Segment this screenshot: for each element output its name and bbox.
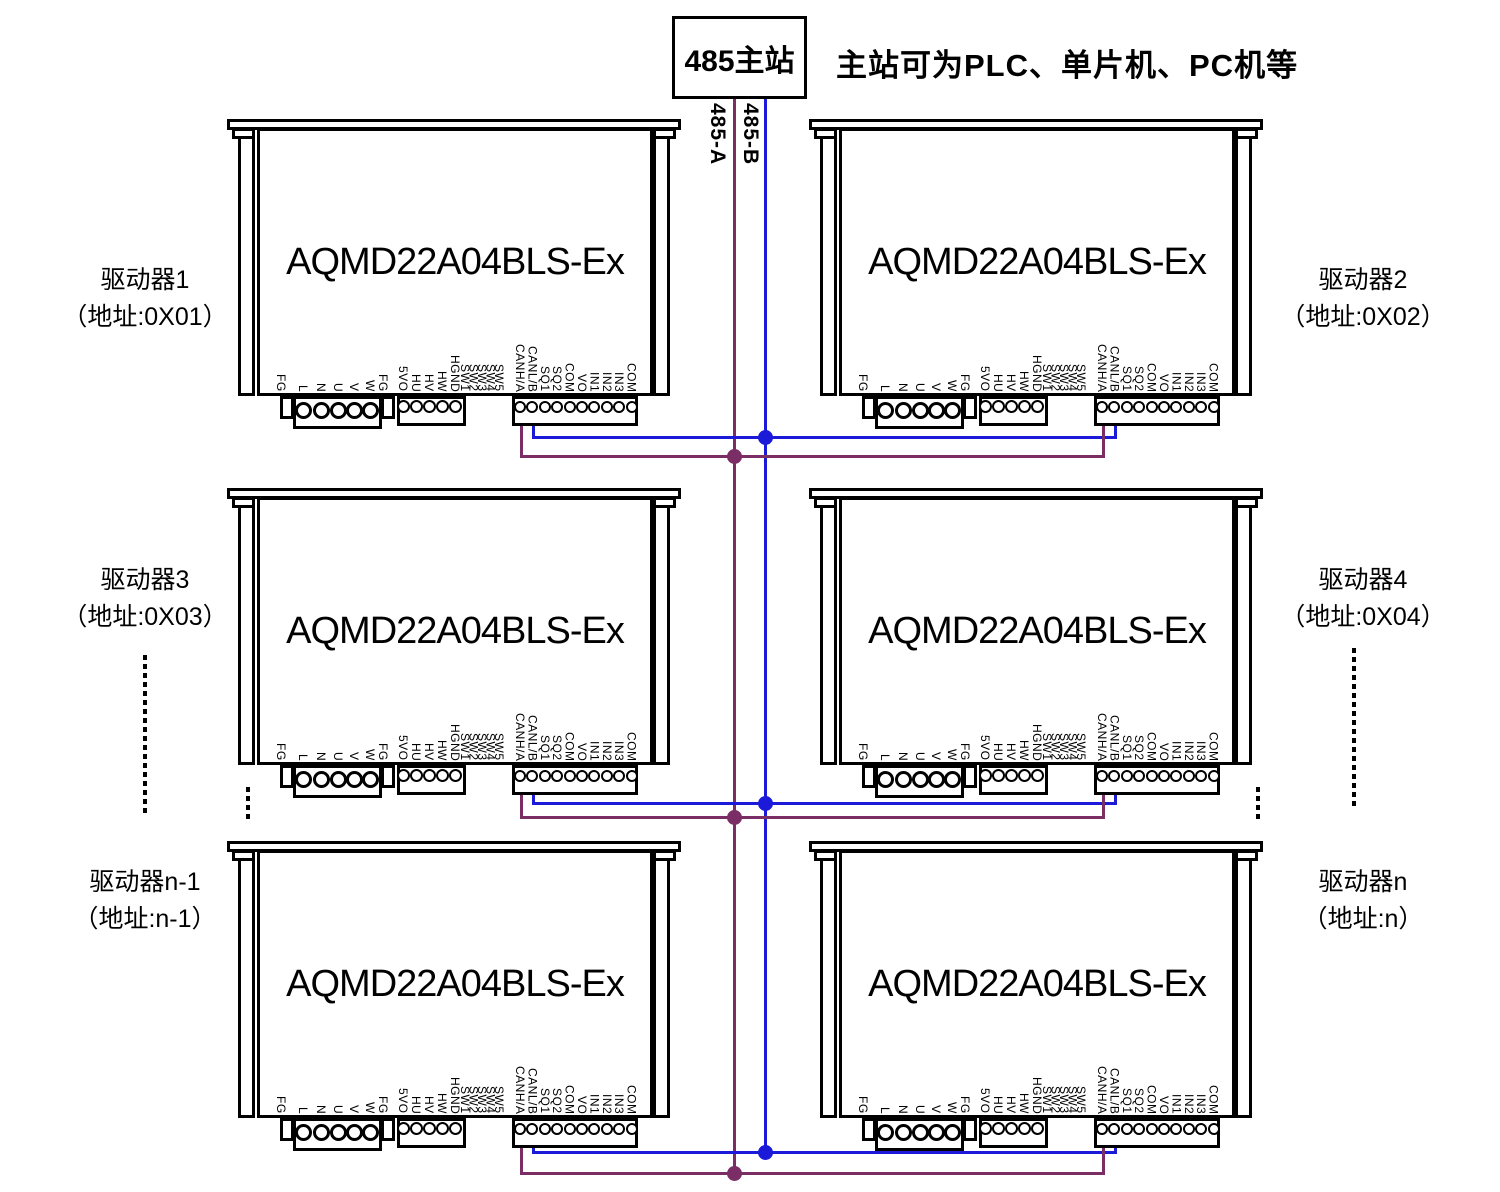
driver-label: 驱动器3（地址:0X03） <box>45 562 245 636</box>
pin-label: N <box>896 752 909 761</box>
terminal-hole <box>436 400 449 413</box>
pin-label: IN2 <box>1182 741 1195 761</box>
terminal-hole <box>362 402 379 419</box>
terminal-hole <box>1195 401 1207 413</box>
pin-label: HV <box>422 743 435 761</box>
terminal-hole <box>576 1123 588 1135</box>
terminal-hole <box>1195 770 1207 782</box>
driver-label: 驱动器n（地址:n） <box>1263 864 1463 938</box>
pin-label: COM <box>1207 363 1220 393</box>
pin-label: CANL/B <box>1107 346 1120 392</box>
mounting-post-left <box>820 497 837 765</box>
pin-label: IN2 <box>1182 372 1195 392</box>
pin-label: L <box>878 1107 891 1114</box>
terminal-hole <box>1018 769 1031 782</box>
pin-label: FG <box>274 743 287 761</box>
driver-address: （地址:0X02） <box>1263 299 1463 336</box>
pin-label: U <box>913 383 926 392</box>
terminal-tab-fg-left <box>280 1118 294 1141</box>
mounting-post-right <box>653 850 670 1118</box>
terminal-hole <box>1183 770 1195 782</box>
bus-label-485a: 485-A <box>705 103 729 165</box>
terminal-hole <box>526 1123 538 1135</box>
pin-label: HW <box>435 371 448 392</box>
pin-label: CANL/B <box>525 346 538 392</box>
terminal-hole <box>1096 770 1108 782</box>
terminal-hole <box>601 1123 613 1135</box>
pin-label: FG <box>958 374 971 392</box>
terminal-hole <box>1031 1122 1044 1135</box>
terminal-hole <box>295 1124 312 1141</box>
terminal-hole <box>514 401 526 413</box>
pin-label: COM <box>625 1085 638 1115</box>
terminal-hole <box>295 771 312 788</box>
terminal-hole <box>564 770 576 782</box>
terminal-hole <box>1133 401 1145 413</box>
dip-switch-label: SW5 <box>1074 364 1087 392</box>
wire-485b <box>533 436 1115 439</box>
junction-dot-485b <box>758 1145 773 1160</box>
master-box: 485主站 <box>672 16 807 99</box>
pin-label: IN3 <box>612 1094 625 1114</box>
terminal-hole <box>1005 769 1018 782</box>
terminal-hole <box>330 1124 347 1141</box>
continuation-dots-left <box>143 655 147 815</box>
junction-dot-485a <box>727 810 742 825</box>
pin-label: VO <box>575 1096 588 1114</box>
pin-label: IN3 <box>1194 1094 1207 1114</box>
terminal-hole <box>313 771 330 788</box>
pin-label: HU <box>991 374 1004 392</box>
terminal-hole <box>410 400 423 413</box>
pin-label: FG <box>274 1096 287 1114</box>
terminal-hole <box>588 1123 600 1135</box>
terminal-hole <box>346 771 363 788</box>
dip-switch-label: SW5 <box>492 1086 505 1114</box>
driver-label: 驱动器n-1（地址:n-1） <box>45 864 245 938</box>
pin-label: IN2 <box>600 372 613 392</box>
pin-label: SQ1 <box>1120 366 1133 392</box>
terminal-hole <box>551 1123 563 1135</box>
terminal-hole <box>1195 1123 1207 1135</box>
module-title: AQMD22A04BLS-Ex <box>257 606 653 656</box>
pin-label: HW <box>435 1093 448 1114</box>
terminal-hole <box>346 1124 363 1141</box>
module-title: AQMD22A04BLS-Ex <box>257 237 653 287</box>
pin-label: CANH/A <box>1095 344 1108 392</box>
terminal-hole <box>551 770 563 782</box>
pin-label: CANL/B <box>525 715 538 761</box>
terminal-hole <box>1158 770 1170 782</box>
pin-label: VO <box>575 743 588 761</box>
pin-label: IN3 <box>1194 741 1207 761</box>
mounting-post-right <box>1235 850 1252 1118</box>
terminal-hole <box>539 401 551 413</box>
driver-address: （地址:n-1） <box>45 901 245 938</box>
mounting-post-right <box>1235 497 1252 765</box>
terminal-hole <box>410 1122 423 1135</box>
pin-label: W <box>945 1102 958 1114</box>
mounting-post-right <box>653 128 670 396</box>
pin-label: HU <box>409 1096 422 1114</box>
pin-label: 5VO <box>396 366 409 392</box>
dip-switch-label: SW5 <box>1074 1086 1087 1114</box>
driver-name: 驱动器1 <box>45 262 245 299</box>
driver-label: 驱动器4（地址:0X04） <box>1263 562 1463 636</box>
terminal-hole <box>1146 1123 1158 1135</box>
pin-label: U <box>331 752 344 761</box>
pin-label: SQ2 <box>1132 1088 1145 1114</box>
pin-label: COM <box>563 363 576 393</box>
wire-485a-drop <box>520 426 523 458</box>
master-note: 主站可为PLC、单片机、PC机等 <box>836 40 1298 85</box>
terminal-hole <box>526 770 538 782</box>
pin-label: CANH/A <box>1095 713 1108 761</box>
terminal-tab-fg-right <box>381 396 395 419</box>
pin-label: SQ2 <box>550 735 563 761</box>
wire-485a <box>521 1172 1103 1175</box>
driver-address: （地址:0X01） <box>45 299 245 336</box>
terminal-tab-fg-right <box>381 765 395 788</box>
terminal-tab-fg-right <box>963 396 977 419</box>
terminal-hole <box>1121 1123 1133 1135</box>
junction-dot-485b <box>758 796 773 811</box>
terminal-hole <box>613 401 625 413</box>
terminal-hole <box>362 771 379 788</box>
terminal-hole <box>1170 401 1182 413</box>
terminal-hole <box>514 1123 526 1135</box>
pin-label: 5VO <box>978 735 991 761</box>
driver-address: （地址:0X04） <box>1263 599 1463 636</box>
terminal-hole <box>944 771 961 788</box>
driver-name: 驱动器n <box>1263 864 1463 901</box>
terminal-hole <box>877 771 894 788</box>
pin-label: N <box>896 1105 909 1114</box>
module-title: AQMD22A04BLS-Ex <box>257 959 653 1009</box>
junction-dot-485a <box>727 449 742 464</box>
terminal-hole <box>1133 1123 1145 1135</box>
wire-485a <box>521 816 1103 819</box>
terminal-hole <box>912 402 929 419</box>
pin-label: 5VO <box>978 366 991 392</box>
terminal-hole <box>397 400 410 413</box>
terminal-hole <box>992 1122 1005 1135</box>
pin-label: W <box>363 380 376 392</box>
terminal-hole <box>1158 401 1170 413</box>
pin-label: CANL/B <box>1107 1068 1120 1114</box>
pin-label: HW <box>1017 1093 1030 1114</box>
terminal-hole <box>410 769 423 782</box>
terminal-hole <box>601 401 613 413</box>
terminal-hole <box>613 1123 625 1135</box>
pin-label: L <box>878 385 891 392</box>
continuation-dots-left-rail <box>246 787 250 823</box>
pin-label: N <box>314 383 327 392</box>
pin-label: IN1 <box>587 372 600 392</box>
pin-label: IN1 <box>587 741 600 761</box>
terminal-hole <box>330 771 347 788</box>
pin-label: U <box>913 752 926 761</box>
terminal-hole <box>1108 401 1120 413</box>
terminal-tab-fg-right <box>963 765 977 788</box>
mounting-post-left <box>820 850 837 1118</box>
terminal-hole <box>397 1122 410 1135</box>
pin-label: IN1 <box>1169 372 1182 392</box>
pin-label: HV <box>422 1096 435 1114</box>
pin-label: FG <box>376 374 389 392</box>
terminal-hole <box>895 402 912 419</box>
terminal-hole <box>397 769 410 782</box>
terminal-hole <box>1108 770 1120 782</box>
driver-name: 驱动器3 <box>45 562 245 599</box>
pin-label: SQ1 <box>538 366 551 392</box>
pin-label: CANH/A <box>1095 1066 1108 1114</box>
terminal-hole <box>1146 770 1158 782</box>
terminal-hole <box>423 400 436 413</box>
continuation-dots-right <box>1352 648 1356 808</box>
pin-label: VO <box>1157 743 1170 761</box>
pin-label: HW <box>435 740 448 761</box>
terminal-hole <box>1108 1123 1120 1135</box>
pin-label: CANH/A <box>513 344 526 392</box>
pin-label: V <box>929 752 942 761</box>
terminal-hole <box>539 770 551 782</box>
terminal-hole <box>423 769 436 782</box>
pin-label: N <box>314 752 327 761</box>
bus-label-485b: 485-B <box>738 103 762 165</box>
pin-label: HU <box>991 1096 1004 1114</box>
pin-label: HV <box>1004 743 1017 761</box>
pin-label: FG <box>958 1096 971 1114</box>
pin-label: VO <box>575 374 588 392</box>
pin-label: L <box>296 1107 309 1114</box>
terminal-hole <box>576 770 588 782</box>
wire-485b-drop <box>532 1148 535 1154</box>
pin-label: L <box>296 385 309 392</box>
wire-485b-drop <box>1114 426 1117 439</box>
pin-label: HV <box>1004 374 1017 392</box>
terminal-hole <box>912 771 929 788</box>
terminal-hole <box>928 402 945 419</box>
bus-line-485a <box>733 99 736 1175</box>
terminal-tab-fg-left <box>862 1118 876 1141</box>
terminal-tab-fg-left <box>862 765 876 788</box>
pin-label: 5VO <box>396 1088 409 1114</box>
terminal-hole <box>979 1122 992 1135</box>
terminal-hole <box>551 401 563 413</box>
terminal-hole <box>436 1122 449 1135</box>
terminal-tab-fg-left <box>280 396 294 419</box>
terminal-hole <box>313 402 330 419</box>
terminal-hole <box>626 401 638 413</box>
terminal-hole <box>1018 1122 1031 1135</box>
module-title: AQMD22A04BLS-Ex <box>839 237 1235 287</box>
terminal-hole <box>588 770 600 782</box>
pin-label: N <box>314 1105 327 1114</box>
wire-485b <box>533 1151 1115 1154</box>
pin-label: W <box>945 749 958 761</box>
dip-switch-label: SW5 <box>492 364 505 392</box>
terminal-hole <box>992 400 1005 413</box>
pin-label: 5VO <box>396 735 409 761</box>
terminal-hole <box>992 769 1005 782</box>
terminal-hole <box>1031 769 1044 782</box>
terminal-hole <box>449 400 462 413</box>
pin-label: SQ2 <box>550 366 563 392</box>
wire-485a-drop <box>520 1148 523 1175</box>
terminal-tab-fg-right <box>963 1118 977 1141</box>
driver-address: （地址:n） <box>1263 901 1463 938</box>
terminal-hole <box>1183 1123 1195 1135</box>
terminal-hole <box>330 402 347 419</box>
wire-485a <box>521 455 1103 458</box>
pin-label: SQ2 <box>1132 735 1145 761</box>
pin-label: N <box>896 383 909 392</box>
continuation-dots-right-rail <box>1256 787 1260 823</box>
terminal-hole <box>449 1122 462 1135</box>
terminal-hole <box>576 401 588 413</box>
pin-label: COM <box>1145 1085 1158 1115</box>
terminal-hole <box>449 769 462 782</box>
pin-label: IN3 <box>612 372 625 392</box>
pin-label: L <box>878 754 891 761</box>
pin-label: V <box>929 1105 942 1114</box>
pin-label: IN1 <box>587 1094 600 1114</box>
wire-485a-drop <box>520 795 523 819</box>
terminal-hole <box>601 770 613 782</box>
pin-label: HU <box>409 743 422 761</box>
wire-485b-drop <box>532 795 535 805</box>
terminal-hole <box>588 401 600 413</box>
pin-label: IN2 <box>600 1094 613 1114</box>
terminal-hole <box>1096 1123 1108 1135</box>
terminal-hole <box>1170 1123 1182 1135</box>
pin-label: SQ2 <box>1132 366 1145 392</box>
pin-label: IN2 <box>600 741 613 761</box>
pin-label: 5VO <box>978 1088 991 1114</box>
pin-label: U <box>331 383 344 392</box>
terminal-hole <box>1183 401 1195 413</box>
driver-label: 驱动器2（地址:0X02） <box>1263 262 1463 336</box>
pin-label: V <box>347 383 360 392</box>
pin-label: HV <box>1004 1096 1017 1114</box>
terminal-hole <box>564 1123 576 1135</box>
terminal-hole <box>1005 400 1018 413</box>
pin-label: SQ2 <box>550 1088 563 1114</box>
terminal-hole <box>626 1123 638 1135</box>
wire-485a-drop <box>1102 426 1105 458</box>
terminal-hole <box>1121 401 1133 413</box>
terminal-hole <box>1005 1122 1018 1135</box>
terminal-tab-fg-left <box>862 396 876 419</box>
terminal-hole <box>979 769 992 782</box>
terminal-hole <box>877 402 894 419</box>
pin-label: COM <box>563 732 576 762</box>
wire-485a-drop <box>1102 795 1105 819</box>
terminal-hole <box>626 770 638 782</box>
pin-label: W <box>363 749 376 761</box>
terminal-hole <box>1146 401 1158 413</box>
pin-label: COM <box>625 732 638 762</box>
terminal-hole <box>1208 401 1220 413</box>
wire-485b-drop <box>532 426 535 439</box>
pin-label: FG <box>856 374 869 392</box>
driver-name: 驱动器2 <box>1263 262 1463 299</box>
module-title: AQMD22A04BLS-Ex <box>839 606 1235 656</box>
terminal-hole <box>295 402 312 419</box>
terminal-hole <box>362 1124 379 1141</box>
terminal-hole <box>526 401 538 413</box>
terminal-hole <box>1031 400 1044 413</box>
wire-485b-drop <box>1114 1148 1117 1154</box>
terminal-hole <box>346 402 363 419</box>
terminal-hole <box>539 1123 551 1135</box>
driver-label: 驱动器1（地址:0X01） <box>45 262 245 336</box>
wire-485b <box>533 802 1115 805</box>
pin-label: L <box>296 754 309 761</box>
dip-switch-label: SW5 <box>492 733 505 761</box>
pin-label: V <box>347 752 360 761</box>
terminal-hole <box>912 1124 929 1141</box>
pin-label: CANH/A <box>513 1066 526 1114</box>
pin-label: CANH/A <box>513 713 526 761</box>
terminal-hole <box>436 769 449 782</box>
pin-label: FG <box>376 1096 389 1114</box>
terminal-hole <box>313 1124 330 1141</box>
terminal-hole <box>1133 770 1145 782</box>
terminal-hole <box>1208 770 1220 782</box>
terminal-hole <box>895 1124 912 1141</box>
terminal-hole <box>613 770 625 782</box>
terminal-hole <box>979 400 992 413</box>
pin-label: V <box>347 1105 360 1114</box>
mounting-post-right <box>1235 128 1252 396</box>
pin-label: HW <box>1017 371 1030 392</box>
driver-name: 驱动器n-1 <box>45 864 245 901</box>
wire-485a-drop <box>1102 1148 1105 1175</box>
pin-label: IN3 <box>612 741 625 761</box>
pin-label: IN3 <box>1194 372 1207 392</box>
terminal-hole <box>944 1124 961 1141</box>
pin-label: V <box>929 383 942 392</box>
pin-label: FG <box>856 1096 869 1114</box>
pin-label: IN2 <box>1182 1094 1195 1114</box>
pin-label: VO <box>1157 374 1170 392</box>
pin-label: IN1 <box>1169 1094 1182 1114</box>
pin-label: CANL/B <box>1107 715 1120 761</box>
driver-name: 驱动器4 <box>1263 562 1463 599</box>
pin-label: W <box>945 380 958 392</box>
pin-label: FG <box>376 743 389 761</box>
pin-label: U <box>913 1105 926 1114</box>
pin-label: FG <box>856 743 869 761</box>
terminal-hole <box>1170 770 1182 782</box>
pin-label: W <box>363 1102 376 1114</box>
mounting-post-right <box>653 497 670 765</box>
terminal-hole <box>1208 1123 1220 1135</box>
pin-label: COM <box>1207 732 1220 762</box>
terminal-hole <box>564 401 576 413</box>
pin-label: HU <box>409 374 422 392</box>
pin-label: SQ1 <box>1120 735 1133 761</box>
pin-label: VO <box>1157 1096 1170 1114</box>
pin-label: COM <box>625 363 638 393</box>
junction-dot-485a <box>727 1166 742 1181</box>
pin-label: HV <box>422 374 435 392</box>
rs485-wiring-diagram: 485主站 主站可为PLC、单片机、PC机等 485-A 485-B AQMD2… <box>0 0 1500 1192</box>
pin-label: COM <box>1145 363 1158 393</box>
pin-label: COM <box>563 1085 576 1115</box>
